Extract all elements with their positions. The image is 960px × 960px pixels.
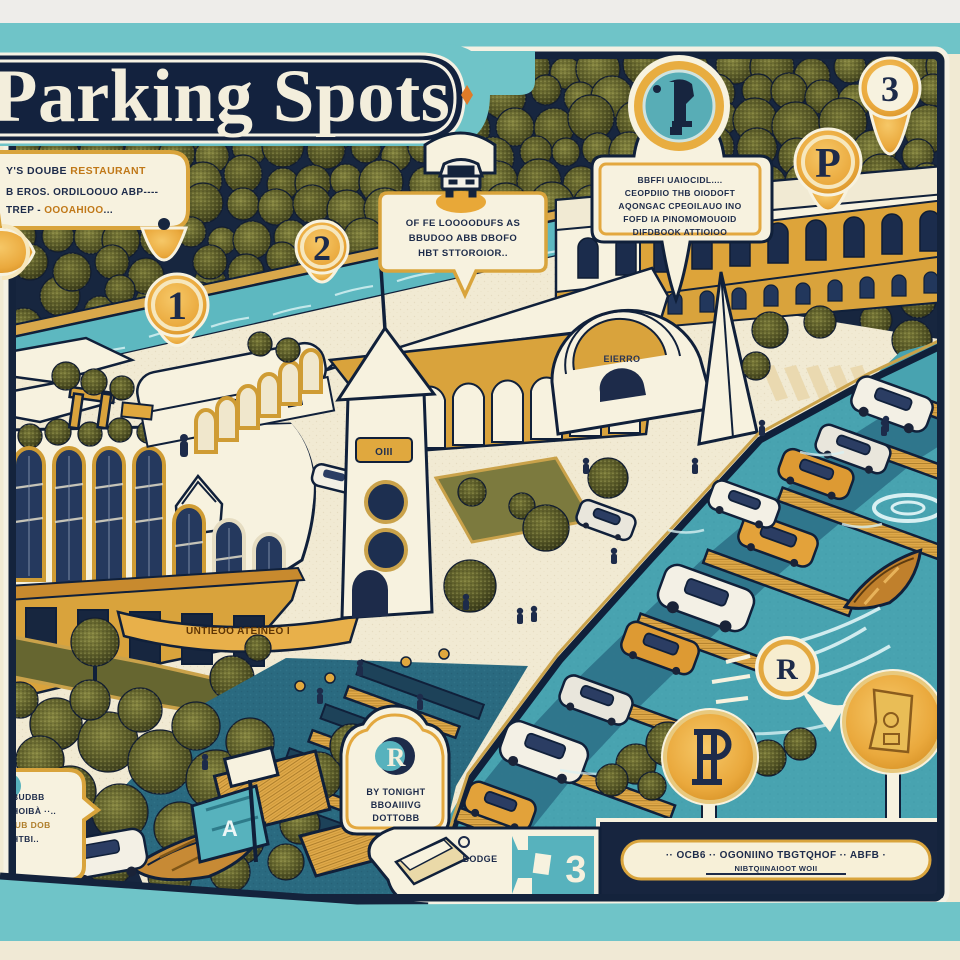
svg-text:Parking Spots: Parking Spots (0, 55, 450, 138)
svg-text:HOIBÀ ··..: HOIBÀ ··.. (12, 806, 56, 816)
svg-text:Y'S DOUBE RESTAURANT: Y'S DOUBE RESTAURANT (6, 165, 146, 177)
svg-text:HBT STTOROIOR..: HBT STTOROIOR.. (418, 248, 508, 259)
svg-text:BBFFI UAIOCIDL....: BBFFI UAIOCIDL.... (637, 175, 722, 185)
svg-text:FOFD IA PINOMOMOUOID: FOFD IA PINOMOMOUOID (623, 214, 736, 224)
svg-text:·· OCB6 ·· OGONIINO TBGTQHOF ·: ·· OCB6 ·· OGONIINO TBGTQHOF ·· ABFB · (666, 850, 886, 861)
svg-text:IUB DOB: IUB DOB (12, 820, 51, 830)
svg-text:UNTIEOO ATEINEO I: UNTIEOO ATEINEO I (186, 626, 290, 637)
svg-text:BUDBB: BUDBB (12, 792, 45, 802)
svg-text:R: R (387, 743, 406, 772)
svg-text:3: 3 (565, 849, 587, 891)
svg-text:A: A (222, 816, 238, 841)
svg-text:EIERRO: EIERRO (604, 354, 641, 364)
svg-text:NIBTQIINAIOOT WOII: NIBTQIINAIOOT WOII (734, 864, 817, 873)
svg-text:BODGE: BODGE (462, 854, 497, 864)
svg-text:BY TONIGHT: BY TONIGHT (366, 787, 425, 797)
svg-text:OIII: OIII (375, 447, 393, 458)
svg-text:HTBI..: HTBI.. (12, 834, 39, 844)
svg-text:P: P (815, 141, 841, 187)
svg-text:B EROS. ORDILOOUO ABP----: B EROS. ORDILOOUO ABP---- (6, 187, 158, 198)
svg-text:AQONGAC CPEOILAUO INO: AQONGAC CPEOILAUO INO (618, 201, 741, 211)
svg-text:2: 2 (313, 228, 331, 268)
svg-text:DIFDBOOK ATTIOIOO: DIFDBOOK ATTIOIOO (633, 227, 728, 237)
svg-text:1: 1 (167, 283, 187, 328)
svg-text:BBOAIIIVG: BBOAIIIVG (371, 800, 422, 810)
svg-text:CEOPDIIO THB OIODOFT: CEOPDIIO THB OIODOFT (625, 188, 736, 198)
svg-text:3: 3 (881, 69, 899, 109)
svg-text:TREP - OOOAHIOO...: TREP - OOOAHIOO... (6, 205, 113, 216)
svg-text:R: R (776, 653, 798, 686)
svg-text:OF FE LOOOODUFS AS: OF FE LOOOODUFS AS (406, 218, 521, 229)
svg-text:BBUDOO ABB DBOFO: BBUDOO ABB DBOFO (409, 233, 517, 244)
svg-text:DOTTOBB: DOTTOBB (372, 813, 419, 823)
